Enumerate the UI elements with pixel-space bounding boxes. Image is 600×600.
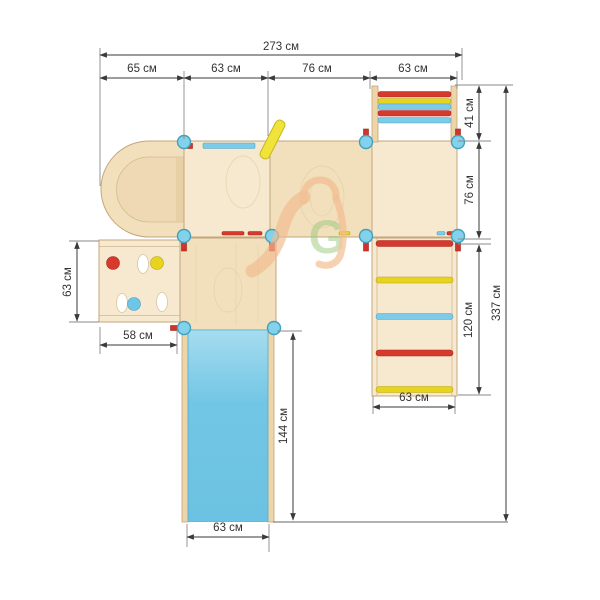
dim-label: 273 см — [263, 41, 299, 53]
wall-ladder — [372, 238, 457, 396]
dim-label: 63 см — [62, 267, 74, 297]
edge-dash — [437, 232, 445, 236]
ladder-rung — [378, 111, 451, 117]
dim-wall-ladder-height: 120 см — [463, 245, 479, 394]
climbing-wall — [99, 240, 180, 322]
ladder-rung — [376, 350, 453, 356]
dim-climb-wall-width: 58 см — [100, 330, 177, 345]
dim-panel-c-width: 63 см — [370, 63, 457, 78]
hand-hole — [157, 293, 168, 312]
slide-rail — [268, 330, 274, 522]
panel-c — [372, 141, 457, 237]
slide-surface — [188, 330, 268, 522]
dim-label: 120 см — [463, 302, 475, 338]
climb-hold-red — [107, 257, 120, 270]
dim-label: 63 см — [399, 392, 429, 404]
playground-plan-drawing: G — [0, 0, 600, 600]
platform-panel — [180, 238, 276, 330]
connector — [360, 136, 373, 149]
connector — [452, 230, 465, 243]
edge-dash — [248, 232, 262, 236]
hand-hole — [117, 294, 128, 313]
connector — [178, 230, 191, 243]
slide-rail — [182, 330, 188, 522]
dim-label: 58 см — [123, 330, 153, 342]
dim-label: 337 см — [491, 285, 503, 321]
dim-slide-length: 144 см — [278, 333, 293, 520]
ladder-rung — [376, 314, 453, 320]
tunnel-arch-inner — [116, 157, 184, 222]
ladder-rung — [378, 118, 451, 124]
tunnel-arch — [101, 141, 184, 237]
dim-label: 63 см — [398, 63, 428, 75]
panel-a-window-slot — [203, 143, 255, 149]
platform-column — [180, 238, 276, 330]
climb-hold-blue — [128, 298, 141, 311]
play-structure — [99, 86, 465, 522]
dim-total-height: 337 см — [491, 86, 506, 521]
connector — [178, 322, 191, 335]
dim-label: 76 см — [302, 63, 332, 75]
connector — [360, 230, 373, 243]
dim-label: 144 см — [278, 408, 290, 444]
dim-top-ladder-height: 41 см — [464, 86, 479, 140]
dim-slide-width: 63 см — [187, 522, 269, 537]
ladder-rung — [378, 99, 451, 105]
hand-hole — [138, 255, 149, 274]
dim-tunnel-width: 65 см — [100, 63, 184, 78]
dim-panel-a-width: 63 см — [184, 63, 268, 78]
top-ladder — [372, 86, 457, 142]
ladder-rung — [378, 104, 451, 110]
climbing-wall-panel — [99, 240, 180, 322]
dim-right-panel-height: 76 см — [464, 142, 479, 238]
slide — [182, 330, 274, 522]
ladder-rail — [372, 86, 378, 142]
playground-plan-page: G — [0, 0, 600, 600]
edge-dash — [222, 232, 244, 236]
tunnel-arch-edge-strip — [176, 157, 184, 222]
dim-label: 76 см — [464, 175, 476, 205]
ladder-rung — [378, 92, 451, 98]
climb-hold-yellow — [151, 257, 164, 270]
dim-panel-b-width: 76 см — [268, 63, 370, 78]
ladder-rung — [376, 241, 453, 247]
connector — [452, 136, 465, 149]
dim-label: 63 см — [211, 63, 241, 75]
dim-label: 65 см — [127, 63, 157, 75]
ladder-rung — [376, 277, 453, 283]
dim-total-width: 273 см — [100, 41, 462, 55]
dim-climb-wall-height: 63 см — [62, 242, 77, 321]
dim-label: 41 см — [464, 98, 476, 128]
dim-label: 63 см — [213, 522, 243, 534]
connector — [268, 322, 281, 335]
